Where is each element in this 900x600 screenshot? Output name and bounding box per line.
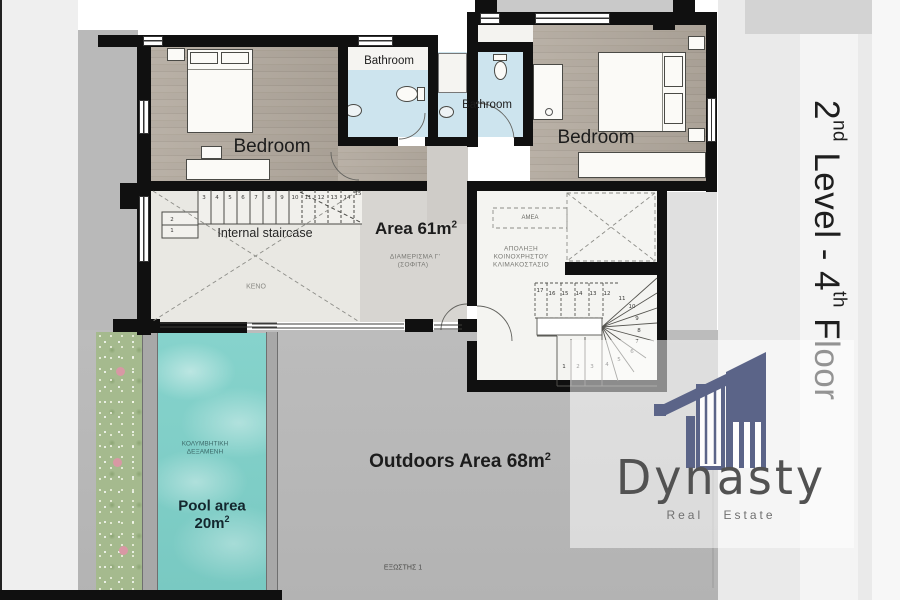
nightstand	[688, 36, 705, 50]
low-cabinet	[578, 152, 706, 178]
stair-step-number: 15	[355, 191, 362, 197]
area-label-sup: 2	[452, 219, 458, 230]
toilet-tank	[417, 87, 425, 101]
pool-area-label: Pool area	[178, 498, 246, 515]
bathroom-right-closet	[438, 53, 467, 93]
stair-step-number: 17	[537, 288, 544, 294]
wall-segment	[475, 0, 497, 12]
swimming-pool	[158, 333, 266, 590]
level-label-part: 2	[807, 100, 846, 120]
pillow	[190, 52, 218, 64]
window	[358, 36, 393, 46]
chair	[201, 146, 222, 159]
stairwell-greek-3: ΚΛΙΜΑΚΟΣΤΑΣΙΟ	[493, 262, 549, 269]
area-label-text: Area 61m	[375, 219, 452, 238]
pillow	[664, 93, 683, 124]
window	[707, 98, 716, 142]
pool-deck-left	[142, 332, 158, 590]
wall-segment	[405, 319, 433, 332]
pillow	[664, 56, 683, 87]
floor-plan-page: Bedroom Bedroom Bathroom Bathroom Intern…	[0, 0, 900, 600]
apartment-greek-label2: (ΣΟΦΙΤΑ)	[398, 262, 429, 269]
window	[139, 100, 149, 134]
level-label-sup: th	[829, 291, 850, 308]
stairwell-greek-2: ΚΟΙΝΟΧΡΗΣΤΟΥ	[494, 254, 549, 261]
stair-step-number: 7	[254, 195, 258, 201]
flower-dot	[113, 458, 122, 467]
stair-step-number: 15	[562, 291, 569, 297]
desk	[186, 159, 270, 180]
toilet-icon	[396, 86, 418, 102]
stair-step-number: 9	[280, 195, 284, 201]
wall-segment	[98, 35, 338, 47]
stair-step-number: 5	[228, 195, 232, 201]
outdoors-label-text: Outdoors Area 68m	[369, 451, 545, 472]
logo-tagline: Real Estate	[590, 508, 852, 522]
balcony-label: ΕΞΩΣΤΗΣ 1	[384, 565, 422, 572]
stair-step-number: 12	[604, 291, 611, 297]
wall-segment	[514, 137, 533, 146]
apartment-greek-label: ΔΙΑΜΕΡΙΣΜΑ Γ'	[390, 254, 440, 261]
bathroom-right-label: Bathroom	[462, 99, 512, 111]
pool-greek-2: ΔΕΞΑΜΕΝΗ	[187, 449, 223, 456]
stair-step-number: 1	[170, 228, 174, 234]
right-niche	[667, 192, 717, 330]
stair-step-number: 13	[331, 195, 338, 201]
stair-step-number: 4	[215, 195, 219, 201]
wall-segment	[338, 137, 398, 146]
stair-step-number: 9	[635, 316, 639, 322]
accessible-label: ΑΜΕΑ	[521, 215, 538, 221]
bed-sheet-line	[662, 53, 663, 131]
stair-step-number: 11	[619, 296, 626, 302]
left-terrace-strip	[78, 30, 138, 330]
flower-dot	[116, 367, 125, 376]
pool-value-sup: 2	[225, 514, 230, 524]
stair-step-number: 3	[202, 195, 206, 201]
area-label: Area 61m2	[375, 219, 457, 239]
entry-nook	[478, 25, 533, 42]
wall-segment	[137, 181, 427, 191]
pool-deck-right	[266, 332, 278, 590]
bedroom-left-label: Bedroom	[233, 136, 310, 158]
wall-segment	[565, 262, 667, 275]
stair-step-number: 8	[267, 195, 271, 201]
left-margin-strip	[2, 0, 78, 600]
outdoors-label-sup: 2	[545, 451, 551, 463]
wall-segment	[120, 183, 137, 209]
wardrobe	[533, 64, 563, 120]
sink-icon	[439, 106, 454, 118]
stair-step-number: 11	[305, 195, 312, 201]
right-edge-strip	[872, 0, 900, 600]
stair-step-number: 14	[344, 195, 351, 201]
toilet-icon	[494, 61, 507, 80]
wall-segment	[428, 35, 438, 137]
pool-greek-1: ΚΟΛΥΜΒΗΤΙΚΗ	[182, 441, 229, 448]
wall-segment	[467, 12, 478, 147]
stair-step-number: 10	[292, 195, 299, 201]
wall-segment	[338, 35, 348, 137]
flower-dot	[119, 546, 128, 555]
window	[143, 36, 163, 46]
stair-step-number: 2	[170, 217, 174, 223]
wall-segment	[653, 12, 675, 30]
bathroom-left-label: Bathroom	[364, 55, 414, 67]
wall-segment	[467, 181, 717, 191]
wall-segment	[0, 590, 282, 600]
stair-step-number: 1	[562, 364, 566, 370]
toilet-tank	[493, 54, 507, 61]
wardrobe-knob	[545, 108, 553, 116]
wall-segment	[113, 319, 160, 332]
stair-step-number: 12	[318, 195, 325, 201]
wall-segment	[458, 319, 477, 332]
stair-step-number: 13	[590, 291, 597, 297]
bathroom-left-tile	[348, 70, 428, 137]
wall-segment	[523, 42, 533, 137]
wall-segment	[467, 191, 477, 306]
stair-step-number: 14	[576, 291, 583, 297]
wall-segment	[673, 0, 695, 12]
window	[480, 13, 500, 24]
stair-landing	[427, 146, 468, 224]
window	[139, 196, 149, 262]
pillow	[221, 52, 249, 64]
level-label-part: Level - 4	[807, 142, 846, 291]
stairwell-greek-1: ΑΠΟΛΗΞΗ	[504, 246, 538, 253]
stair-step-number: 16	[549, 291, 556, 297]
stair-step-number: 8	[637, 328, 641, 334]
pool-area-value: 20m2	[194, 514, 229, 532]
nightstand	[688, 128, 705, 142]
stair-step-number: 6	[241, 195, 245, 201]
window	[535, 13, 610, 24]
pool-value-text: 20m	[194, 515, 224, 532]
void-label: ΚΕΝΟ	[246, 284, 266, 291]
stair-step-number: 10	[629, 304, 636, 310]
outdoors-label: Outdoors Area 68m2	[369, 451, 551, 473]
bedroom-right-label: Bedroom	[557, 127, 634, 149]
upper-room-sliver	[497, 0, 673, 12]
internal-staircase-label: Internal staircase	[217, 226, 312, 240]
nightstand	[167, 48, 185, 61]
logo-wordmark: Dynasty	[590, 449, 852, 506]
top-gray-bar	[745, 0, 872, 34]
bed-sheet-line	[188, 69, 252, 70]
level-label-sup: nd	[829, 120, 850, 142]
